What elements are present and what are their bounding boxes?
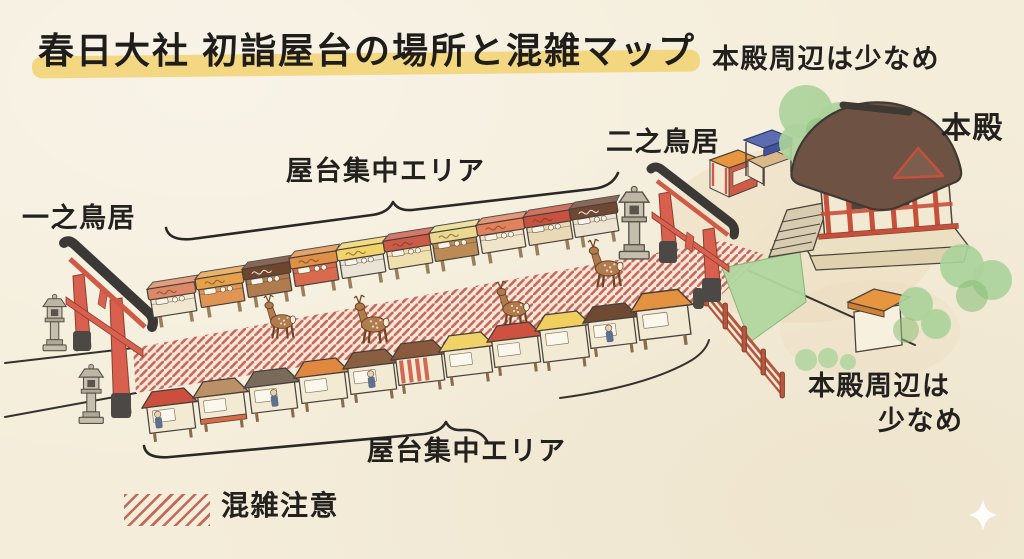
stone-lantern bbox=[43, 294, 66, 350]
note-honden-area-right-line2: 少なめ bbox=[878, 406, 964, 437]
food-stall-bottom-row bbox=[191, 377, 253, 433]
sparkle-mark bbox=[969, 499, 997, 531]
person-figure bbox=[367, 370, 374, 377]
label-yatai-area-top: 屋台集中エリア bbox=[286, 156, 486, 187]
label-yatai-area-bottom: 屋台集中エリア bbox=[367, 436, 567, 467]
map-canvas: 春日大社 初詣屋台の場所と混雑マップ 本殿周辺は少なめ 二之鳥居 本殿 屋台集中… bbox=[0, 0, 1024, 559]
map-title: 春日大社 初詣屋台の場所と混雑マップ bbox=[38, 22, 696, 74]
legend-label: 混雑注意 bbox=[221, 490, 339, 522]
legend-swatch bbox=[124, 494, 210, 526]
person-figure bbox=[605, 325, 612, 332]
map-title-block: 春日大社 初詣屋台の場所と混雑マップ bbox=[38, 22, 696, 74]
note-honden-area-top: 本殿周辺は少なめ bbox=[712, 44, 940, 75]
label-honden: 本殿 bbox=[941, 112, 1004, 147]
label-ichi-no-torii: 一之鳥居 bbox=[22, 203, 136, 234]
note-honden-area-right-line1: 本殿周辺は bbox=[808, 371, 951, 402]
label-ni-no-torii: 二之鳥居 bbox=[606, 127, 720, 158]
food-stall-bottom-row bbox=[292, 357, 354, 413]
person-figure bbox=[154, 411, 161, 418]
stone-lantern bbox=[619, 186, 649, 258]
food-stall-bottom-row bbox=[140, 387, 202, 443]
food-stall-bottom-row bbox=[242, 367, 304, 423]
map-illustration bbox=[0, 0, 1024, 559]
stone-lantern bbox=[79, 364, 103, 423]
person-figure bbox=[270, 389, 277, 396]
